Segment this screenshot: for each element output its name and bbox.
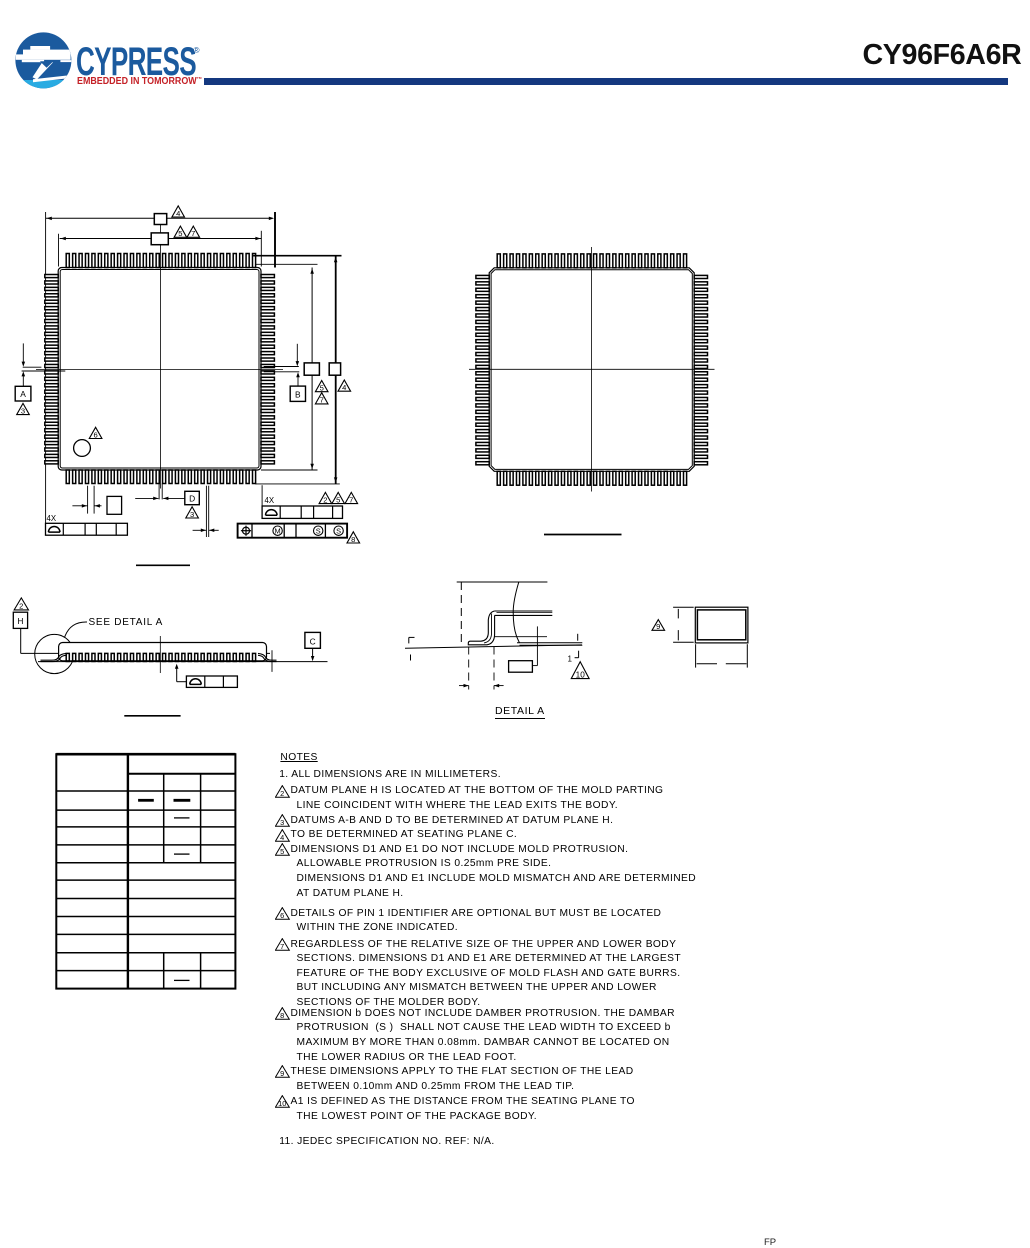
svg-text:7: 7	[191, 229, 195, 238]
svg-text:10: 10	[278, 1099, 286, 1108]
svg-text:3: 3	[280, 818, 284, 827]
svg-text:D: D	[189, 494, 195, 504]
svg-text:4X: 4X	[265, 496, 275, 505]
svg-text:4: 4	[342, 383, 346, 392]
svg-text:5: 5	[280, 847, 284, 856]
svg-text:M: M	[275, 527, 281, 536]
svg-text:C: C	[310, 636, 316, 646]
svg-text:7: 7	[320, 396, 324, 405]
svg-text:S: S	[336, 527, 341, 536]
svg-text:1: 1	[568, 655, 573, 664]
svg-text:10: 10	[576, 670, 586, 679]
svg-text:9: 9	[656, 622, 660, 631]
svg-text:B: B	[295, 389, 301, 399]
svg-text:7: 7	[280, 942, 284, 951]
svg-text:4X: 4X	[47, 514, 57, 523]
svg-text:4: 4	[280, 833, 284, 842]
svg-text:6: 6	[93, 430, 97, 439]
svg-text:5: 5	[336, 495, 340, 504]
svg-text:3: 3	[190, 510, 194, 519]
svg-text:2: 2	[323, 495, 327, 504]
svg-text:6: 6	[280, 911, 284, 920]
svg-text:S: S	[316, 527, 321, 536]
svg-text:2: 2	[19, 602, 23, 611]
svg-text:8: 8	[280, 1011, 284, 1020]
svg-text:2: 2	[280, 789, 284, 798]
svg-text:7: 7	[349, 495, 353, 504]
svg-text:A: A	[20, 389, 26, 399]
svg-text:4: 4	[176, 209, 180, 218]
svg-text:9: 9	[280, 1069, 284, 1078]
svg-text:H: H	[17, 616, 23, 626]
svg-text:3: 3	[21, 406, 25, 415]
svg-text:8: 8	[351, 535, 355, 544]
svg-text:5: 5	[320, 384, 324, 393]
svg-text:5: 5	[178, 229, 182, 238]
